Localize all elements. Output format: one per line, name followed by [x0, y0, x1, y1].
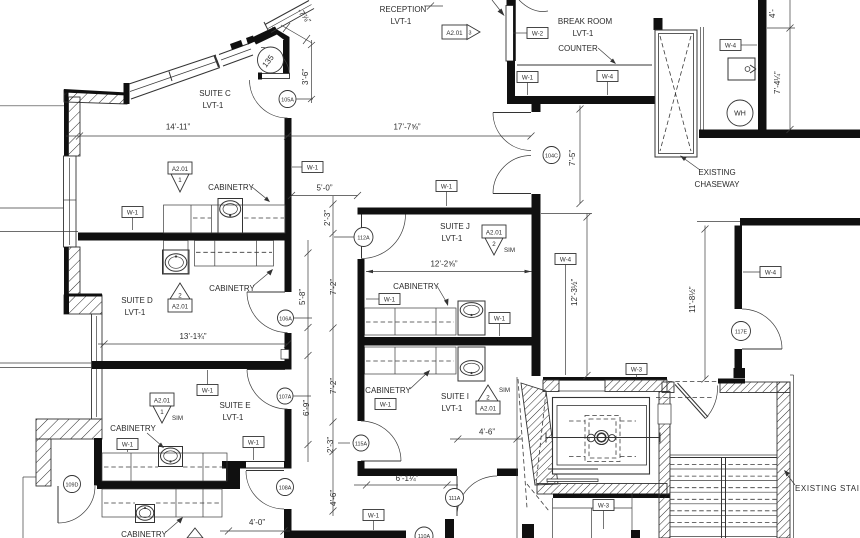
- svg-text:110A: 110A: [418, 534, 431, 538]
- svg-text:W-3: W-3: [598, 503, 610, 510]
- svg-text:SUITE C: SUITE C: [199, 89, 231, 98]
- svg-text:LVT-1: LVT-1: [573, 29, 594, 38]
- svg-text:12’-3½”: 12’-3½”: [570, 279, 579, 306]
- svg-text:4’-0”: 4’-0”: [249, 518, 265, 527]
- svg-text:105A: 105A: [281, 98, 294, 104]
- svg-text:W-1: W-1: [441, 184, 453, 191]
- svg-text:1: 1: [178, 177, 182, 184]
- svg-text:107A: 107A: [279, 395, 292, 401]
- svg-text:LVT-1: LVT-1: [391, 17, 412, 26]
- svg-text:7’-2”: 7’-2”: [329, 378, 338, 394]
- svg-text:EXISTING STAIR: EXISTING STAIR: [795, 484, 860, 493]
- svg-text:CABINETRY: CABINETRY: [110, 424, 156, 433]
- svg-text:EXISTING: EXISTING: [698, 168, 735, 177]
- svg-text:W-1: W-1: [368, 513, 380, 520]
- svg-text:12’-2⅝”: 12’-2⅝”: [430, 260, 457, 269]
- svg-text:SUITE E: SUITE E: [219, 401, 250, 410]
- svg-text:2: 2: [492, 241, 496, 248]
- svg-text:6’-1¼”: 6’-1¼”: [396, 474, 419, 483]
- svg-text:17’-7⅝”: 17’-7⅝”: [393, 123, 420, 132]
- svg-text:W-1: W-1: [380, 402, 392, 409]
- svg-text:W-4: W-4: [560, 257, 572, 264]
- svg-text:2’-3”: 2’-3”: [323, 210, 332, 226]
- svg-text:LVT-1: LVT-1: [442, 404, 463, 413]
- svg-text:115A: 115A: [355, 442, 368, 448]
- svg-text:4’-6”: 4’-6”: [479, 428, 495, 437]
- svg-text:CABINETRY: CABINETRY: [121, 530, 167, 538]
- svg-text:A2.01: A2.01: [154, 398, 171, 405]
- svg-text:2: 2: [178, 293, 182, 300]
- svg-text:3: 3: [469, 31, 472, 37]
- svg-text:W-1: W-1: [384, 297, 396, 304]
- svg-text:109D: 109D: [66, 483, 79, 489]
- svg-text:SUITE D: SUITE D: [121, 296, 153, 305]
- svg-text:111A: 111A: [449, 496, 461, 502]
- svg-text:CABINETRY: CABINETRY: [365, 386, 411, 395]
- svg-text:7’-5”: 7’-5”: [568, 150, 577, 166]
- svg-text:4’-6”: 4’-6”: [329, 490, 338, 506]
- svg-text:112A: 112A: [357, 236, 370, 242]
- svg-text:11’-8½”: 11’-8½”: [688, 286, 697, 313]
- svg-text:2: 2: [486, 395, 490, 402]
- svg-text:COUNTER: COUNTER: [558, 44, 598, 53]
- svg-text:14’-11”: 14’-11”: [166, 123, 191, 132]
- svg-text:6’-9”: 6’-9”: [302, 400, 311, 416]
- svg-text:LVT-1: LVT-1: [442, 234, 463, 243]
- svg-text:3’-6”: 3’-6”: [301, 69, 310, 85]
- svg-text:LVT-1: LVT-1: [203, 101, 224, 110]
- svg-text:W-1: W-1: [307, 165, 319, 172]
- svg-text:A2.01: A2.01: [446, 30, 463, 37]
- svg-text:A2.01: A2.01: [172, 166, 189, 173]
- svg-text:CABINETRY: CABINETRY: [209, 284, 255, 293]
- svg-text:LVT-1: LVT-1: [125, 308, 146, 317]
- svg-text:W-1: W-1: [494, 316, 506, 323]
- svg-text:SIM: SIM: [504, 247, 515, 254]
- svg-text:5’-0”: 5’-0”: [316, 184, 332, 193]
- svg-text:LVT-1: LVT-1: [223, 413, 244, 422]
- svg-text:SUITE I: SUITE I: [441, 392, 469, 401]
- svg-text:1: 1: [160, 409, 164, 416]
- svg-text:108A: 108A: [279, 486, 292, 492]
- svg-text:W-1: W-1: [202, 388, 214, 395]
- svg-text:5’-8”: 5’-8”: [298, 289, 307, 305]
- svg-text:A2.01: A2.01: [480, 406, 497, 413]
- svg-text:W-3: W-3: [631, 367, 643, 374]
- svg-text:CHASEWAY: CHASEWAY: [695, 180, 741, 189]
- svg-text:A2.01: A2.01: [486, 230, 503, 237]
- svg-text:RECEPTION: RECEPTION: [380, 5, 427, 14]
- svg-text:WH: WH: [734, 111, 746, 118]
- svg-text:13’-1¾”: 13’-1¾”: [179, 332, 206, 341]
- svg-text:A2.01: A2.01: [172, 304, 189, 311]
- svg-text:W-1: W-1: [248, 440, 260, 447]
- svg-text:W-2: W-2: [532, 31, 544, 38]
- svg-text:7’-2”: 7’-2”: [329, 279, 338, 295]
- svg-text:SIM: SIM: [499, 387, 510, 394]
- svg-text:106A: 106A: [279, 317, 292, 323]
- svg-text:117E: 117E: [735, 330, 748, 336]
- svg-text:W-1: W-1: [127, 210, 139, 217]
- svg-text:2’-3”: 2’-3”: [326, 437, 335, 453]
- svg-text:CABINETRY: CABINETRY: [208, 183, 254, 192]
- svg-text:SIM: SIM: [172, 415, 183, 422]
- svg-text:W-4: W-4: [602, 74, 614, 81]
- svg-text:W-1: W-1: [522, 75, 534, 82]
- svg-text:BREAK ROOM: BREAK ROOM: [558, 17, 613, 26]
- svg-text:104C: 104C: [545, 154, 558, 160]
- svg-text:7’-4¼”: 7’-4¼”: [773, 71, 782, 94]
- svg-text:W-1: W-1: [122, 442, 134, 449]
- svg-text:4’-: 4’-: [768, 9, 777, 18]
- svg-text:W-4: W-4: [725, 43, 737, 50]
- svg-text:SUITE J: SUITE J: [440, 222, 470, 231]
- svg-text:W-4: W-4: [765, 270, 777, 277]
- svg-text:CABINETRY: CABINETRY: [393, 282, 439, 291]
